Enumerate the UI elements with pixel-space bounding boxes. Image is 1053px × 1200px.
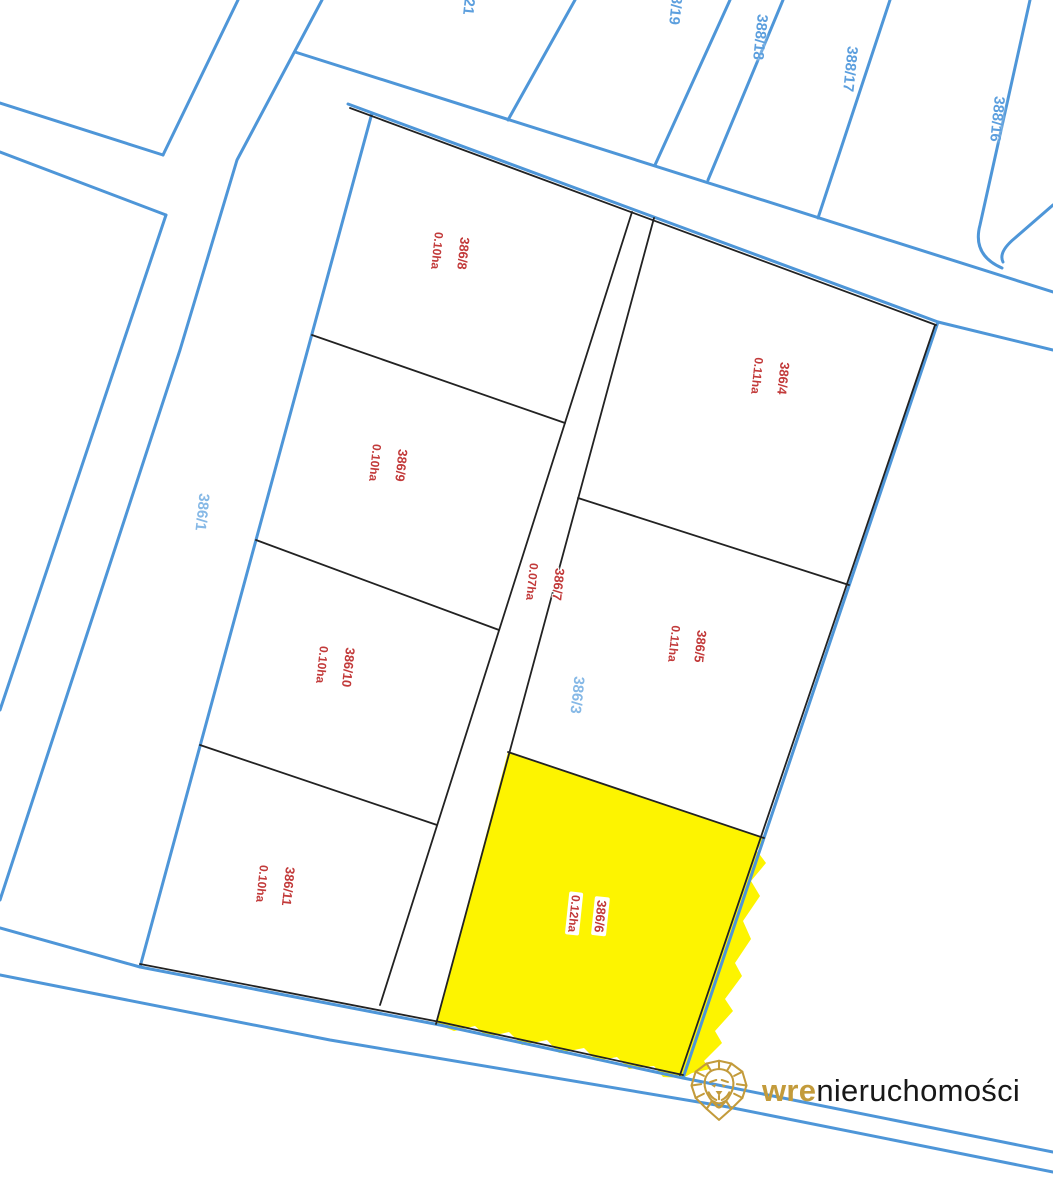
- road-c-lower-right: [938, 322, 1053, 350]
- lion-icon: [686, 1058, 752, 1124]
- lot-label-386-4: 386/4 0.11ha: [742, 356, 798, 398]
- block-right-edge-blue: [683, 322, 938, 1078]
- lot-id: 386/4: [768, 359, 798, 398]
- lot-area: 0.10ha: [422, 231, 452, 271]
- lot-label-386-8: 386/8 0.10ha: [422, 231, 478, 274]
- divider-386-10-11: [200, 745, 437, 825]
- road-b-upper: [0, 103, 163, 155]
- divider-386-9-10: [256, 540, 499, 630]
- brand-nieruchomosci: nieruchomości: [816, 1073, 1020, 1108]
- lot-area: 0.10ha: [247, 863, 277, 905]
- lot-id: 386/10: [333, 646, 363, 688]
- lot-label-386-5: 386/5 0.11ha: [659, 624, 715, 666]
- lot-id: 386/9: [386, 445, 416, 485]
- lot-label-386-10: 386/10 0.10ha: [307, 644, 363, 689]
- road-a-left-lower: [0, 215, 166, 710]
- map-geometry: [0, 0, 1053, 1200]
- road-a-right: [0, 0, 322, 900]
- brand-wordmark: wrenieruchomości: [762, 1058, 1020, 1124]
- lot-label-386-9: 386/9 0.10ha: [360, 443, 416, 486]
- brand-logo: wrenieruchomości: [686, 1058, 1020, 1124]
- lot-id: 386/11: [273, 866, 303, 908]
- lot-area: 0.10ha: [360, 443, 390, 483]
- lot-area: 0.11ha: [742, 356, 772, 395]
- lot-label-386-6: 386/6 0.12ha: [559, 891, 615, 940]
- divider-388-19-18: [655, 0, 730, 165]
- lot-area: 0.10ha: [307, 644, 337, 686]
- lot-id: 386/8: [448, 233, 478, 273]
- divider-388-17-16: [818, 0, 890, 218]
- cadastral-map: 386/8 0.10ha 386/9 0.10ha 386/10 0.10ha …: [0, 0, 1053, 1200]
- block-top-edge-black: [350, 108, 936, 325]
- divider-388-21-19: [508, 0, 575, 120]
- brand-wre: wre: [762, 1073, 816, 1108]
- road-c-upper: [295, 52, 1053, 292]
- block-right-edge-black: [680, 325, 935, 1075]
- lot-id: 386/5: [685, 627, 715, 666]
- lot-area: 0.07ha: [517, 562, 547, 602]
- lot-area: 0.11ha: [659, 624, 689, 663]
- lot-id: 386/7: [543, 564, 573, 604]
- divider-386-4-5: [578, 498, 849, 585]
- lot-id: 386/6: [585, 893, 615, 939]
- divider-right-edge: [1002, 205, 1053, 262]
- lot-label-386-11: 386/11 0.10ha: [247, 863, 303, 907]
- lot-label-386-7: 386/7 0.07ha: [517, 562, 573, 605]
- block-top-edge-blue: [348, 104, 938, 322]
- lot-area: 0.12ha: [559, 891, 589, 937]
- road-b-lower: [0, 152, 166, 215]
- divider-386-8-9: [312, 335, 565, 423]
- road-a-left-upper: [163, 0, 238, 155]
